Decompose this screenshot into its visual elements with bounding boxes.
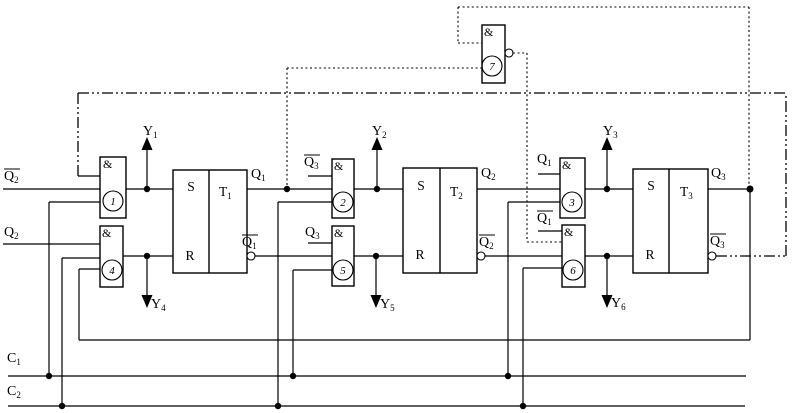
and-gate-4: & 4 — [100, 226, 123, 287]
and-symbol: & — [562, 158, 572, 172]
logic-circuit-diagram: C1 C2 — [0, 0, 795, 413]
y-output-arrows: Y1 Y2 Y3 Y4 Y5 Y6 — [142, 124, 627, 313]
y2-label: Y2 — [372, 124, 387, 140]
feedback-net-gate7-dotted — [287, 7, 749, 242]
input-q2bar-label: Q2 — [4, 169, 19, 185]
t1-r-label: R — [185, 248, 194, 263]
and-symbol: & — [564, 225, 574, 239]
g3-input-q1-label: Q1 — [537, 152, 552, 168]
t1-name: T1 — [219, 184, 232, 201]
and-symbol: & — [334, 159, 344, 173]
and-symbol: & — [103, 157, 113, 171]
c1-label: C1 — [7, 351, 21, 367]
t3-r-label: R — [645, 247, 654, 262]
t3-qbar-label: Q3 — [710, 234, 725, 250]
circuit-svg: C1 C2 — [0, 0, 795, 413]
t1-s-label: S — [187, 179, 195, 194]
t2-qbar-bubble — [477, 252, 485, 260]
and-gate-3: & 3 — [560, 158, 585, 218]
y3-label: Y3 — [603, 124, 618, 140]
and-gate-7: & 7 — [482, 25, 513, 83]
flipflop-t3: S R T3 — [633, 169, 716, 273]
t3-name: T3 — [680, 184, 693, 201]
t2-s-label: S — [417, 178, 425, 193]
g2-input-q3bar-label: Q3 — [304, 155, 319, 171]
t2-name: T2 — [450, 184, 463, 201]
and-gate-6: & 6 — [562, 225, 585, 287]
t2-qbar-label: Q2 — [479, 235, 494, 251]
t1-qbar-bubble — [247, 252, 255, 260]
and-symbol: & — [102, 226, 112, 240]
t2-r-label: R — [415, 247, 424, 262]
feedback-net-q3bar-dashdot — [78, 93, 786, 256]
y4-label: Y4 — [151, 297, 166, 313]
gate-number-2: 2 — [340, 197, 346, 209]
t1-qbar-label: Q1 — [242, 235, 257, 251]
flipflop-t1: S R T1 — [173, 170, 255, 273]
gate-number-7: 7 — [489, 61, 495, 73]
and-symbol: & — [484, 25, 494, 39]
input-q2-label: Q2 — [4, 225, 19, 241]
t3-s-label: S — [647, 178, 655, 193]
g5-input-q3-label: Q3 — [305, 225, 320, 241]
gate-number-1: 1 — [110, 196, 116, 208]
gate-number-4: 4 — [109, 265, 115, 277]
and-gate-1: & 1 — [100, 157, 126, 218]
gate-number-6: 6 — [570, 265, 576, 277]
t3-qbar-bubble — [708, 252, 716, 260]
g6-input-q1bar-label: Q1 — [537, 211, 552, 227]
feedback-net-q3-solid — [79, 189, 750, 340]
gate-number-3: 3 — [568, 197, 575, 209]
t2-q-label: Q2 — [481, 166, 496, 182]
y5-label: Y5 — [380, 297, 395, 313]
t3-q-label: Q3 — [711, 166, 726, 182]
c2-label: C2 — [7, 384, 21, 400]
flipflop-t2: S R T2 — [403, 168, 485, 273]
and-symbol: & — [334, 226, 344, 240]
gate-number-5: 5 — [340, 265, 346, 277]
y6-label: Y6 — [611, 296, 626, 312]
gate7-inversion-bubble — [505, 49, 513, 57]
y1-label: Y1 — [143, 124, 158, 140]
t1-q-label: Q1 — [251, 167, 266, 183]
and-gate-5: & 5 — [332, 226, 354, 286]
junction-dots — [144, 186, 754, 260]
and-gate-2: & 2 — [332, 159, 354, 218]
